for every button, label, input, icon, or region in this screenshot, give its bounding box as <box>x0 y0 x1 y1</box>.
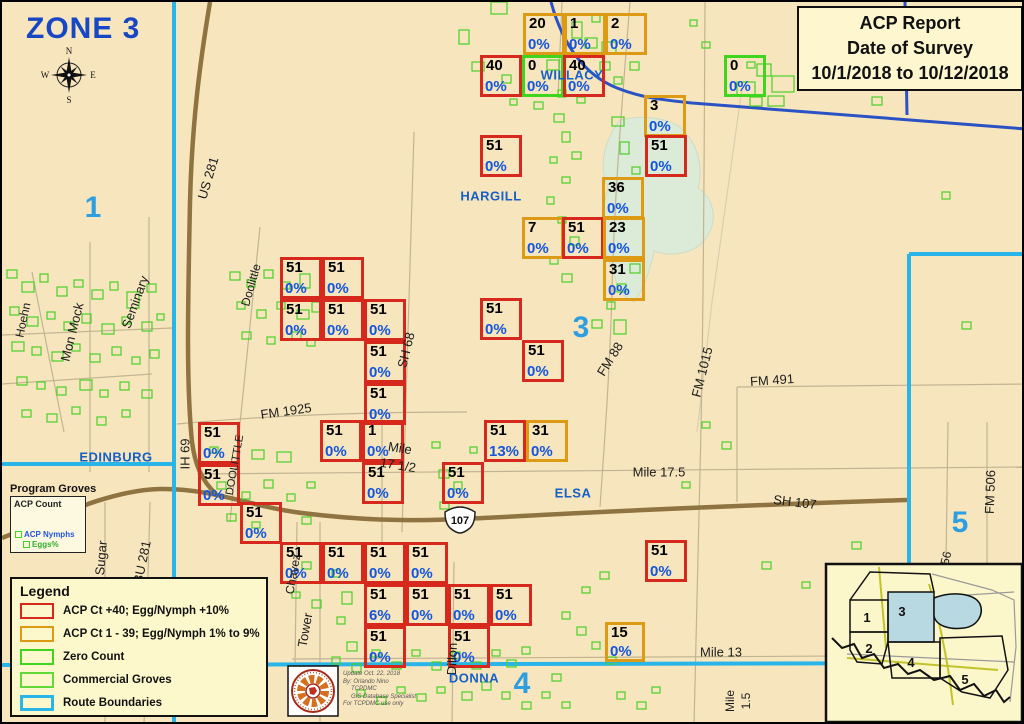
survey-square: 230% <box>603 217 645 259</box>
grove-polygon <box>562 612 570 619</box>
survey-square: 200% <box>523 13 565 55</box>
us-107-shield: 107 <box>445 507 475 533</box>
place-label: ELSA <box>555 486 592 501</box>
inset-zone-number: 2 <box>865 641 872 656</box>
acp-count: 1 <box>570 15 578 32</box>
grove-polygon <box>762 562 771 569</box>
grove-polygon <box>132 357 140 364</box>
legend-label: ACP Ct +40; Egg/Nymph +10% <box>63 605 229 617</box>
grove-polygon <box>287 494 295 501</box>
acp-count: 20 <box>529 15 546 32</box>
acp-count: 51 <box>496 586 513 603</box>
egg-nymph-percent: 0% <box>245 525 267 542</box>
survey-square: 00% <box>724 55 766 97</box>
compass-rose: N S E W <box>41 46 97 105</box>
grove-polygon <box>872 97 882 105</box>
road-label: FM 491 <box>749 371 794 389</box>
grove-polygon <box>562 274 572 282</box>
survey-square: 70% <box>522 217 564 259</box>
grove-polygon <box>522 702 531 709</box>
grove-polygon <box>542 692 550 698</box>
acp-count: 51 <box>370 628 387 645</box>
place-label: EDINBURG <box>79 450 152 465</box>
egg-nymph-percent: 0% <box>610 643 632 660</box>
grove-polygon <box>112 347 121 355</box>
grove-polygon <box>962 322 971 329</box>
grove-polygon <box>630 62 639 70</box>
report-title: ACP Report <box>799 11 1021 36</box>
egg-nymph-percent: 0% <box>285 280 307 297</box>
grove-polygon <box>72 407 80 414</box>
survey-square: 360% <box>602 177 644 219</box>
legend-item: ACP Ct +40; Egg/Nymph +10% <box>20 600 266 622</box>
zone-number: 3 <box>573 311 590 345</box>
compass-e: E <box>90 70 96 80</box>
grove-polygon <box>22 282 34 292</box>
acp-count: 40 <box>486 57 503 74</box>
compass-w: W <box>41 70 50 80</box>
egg-nymph-percent: 0% <box>369 364 391 381</box>
report-date-range: 10/1/2018 to 10/12/2018 <box>799 61 1021 86</box>
road-label: Mile 13 <box>700 645 742 660</box>
legend-item: Route Boundaries <box>20 692 266 714</box>
egg-nymph-percent: 0% <box>285 322 307 339</box>
grove-polygon <box>264 270 273 278</box>
survey-square: 510% <box>364 542 406 584</box>
egg-nymph-percent: 0% <box>495 607 517 624</box>
egg-nymph-percent: 0% <box>527 240 549 257</box>
grove-polygon <box>90 354 100 362</box>
egg-nymph-percent: 0% <box>729 78 751 95</box>
survey-square: 510% <box>322 542 364 584</box>
legend-label: ACP Ct 1 - 39; Egg/Nymph 1% to 9% <box>63 628 260 640</box>
egg-nymph-percent: 0% <box>608 282 630 299</box>
acp-count: 51 <box>370 385 387 402</box>
egg-nymph-percent: 0% <box>369 649 391 666</box>
grove-polygon <box>577 627 586 635</box>
legend-swatch <box>20 695 54 711</box>
egg-nymph-percent: 0% <box>485 158 507 175</box>
grove-polygon <box>7 270 17 278</box>
inset-zone-number: 4 <box>907 655 915 670</box>
inset-zone-number: 5 <box>961 672 968 687</box>
egg-nymph-percent: 0% <box>531 443 553 460</box>
grove-polygon <box>432 442 440 448</box>
grove-polygon <box>120 382 129 390</box>
survey-square: 510% <box>406 584 448 626</box>
road-label: IH 69 <box>178 438 193 469</box>
survey-square: 510% <box>280 257 322 299</box>
grove-glyph <box>15 531 22 538</box>
acp-count: 51 <box>204 424 221 441</box>
grove-polygon <box>614 77 622 84</box>
acp-count: 51 <box>204 466 221 483</box>
acp-count: 51 <box>486 300 503 317</box>
grove-polygon <box>307 482 315 488</box>
egg-nymph-percent: 0% <box>411 565 433 582</box>
egg-nymph-percent: 0% <box>203 445 225 462</box>
road-label: 1.5 <box>739 693 753 710</box>
road-label: Mile 17.5 <box>633 465 686 480</box>
grove-polygon <box>17 377 27 385</box>
program-groves-box: Program Groves ACP Count ACP Nymphs Eggs… <box>10 483 105 553</box>
acp-count-label: ACP Count <box>14 499 82 509</box>
egg-nymph-percent: 0% <box>367 485 389 502</box>
grove-polygon <box>502 692 510 699</box>
acp-count: 36 <box>608 179 625 196</box>
acp-count: 51 <box>328 544 345 561</box>
zone-number: 4 <box>514 667 531 701</box>
acp-count: 51 <box>568 219 585 236</box>
survey-square: 510% <box>406 542 448 584</box>
survey-square: 510% <box>280 299 322 341</box>
egg-nymph-percent: 0% <box>327 565 349 582</box>
survey-square: 30% <box>644 95 686 137</box>
credit-line: TCPDMC <box>343 686 416 694</box>
acp-count: 51 <box>286 259 303 276</box>
program-groves-key: ACP Count ACP Nymphs Eggs% <box>10 496 86 553</box>
survey-square: 510% <box>448 584 490 626</box>
grove-polygon <box>342 592 352 604</box>
credit-line: GIS Database Specialist <box>343 694 416 702</box>
grove-polygon <box>750 97 762 106</box>
acp-count: 51 <box>651 137 668 154</box>
survey-square: 510% <box>562 217 604 259</box>
survey-square: 20% <box>605 13 647 55</box>
grove-polygon <box>550 157 557 163</box>
egg-nymph-percent: 0% <box>447 485 469 502</box>
survey-square: 510% <box>364 299 406 341</box>
grove-polygon <box>682 482 690 488</box>
inset-zone-number: 3 <box>898 604 905 619</box>
grove-polygon <box>32 347 41 355</box>
grove-polygon <box>12 342 24 351</box>
survey-square: 150% <box>605 622 645 662</box>
grove-polygon <box>492 650 500 656</box>
acp-count: 51 <box>448 464 465 481</box>
grove-polygon <box>772 76 794 92</box>
grove-polygon <box>37 382 45 389</box>
grove-polygon <box>852 542 861 549</box>
acp-count: 31 <box>609 261 626 278</box>
program-groves-title: Program Groves <box>10 483 105 495</box>
egg-nymph-percent: 0% <box>649 118 671 135</box>
acp-survey-map: N S E W 107 <box>0 0 1024 724</box>
grove-polygon <box>227 514 236 521</box>
grove-polygon <box>768 96 784 106</box>
acp-nymphs-label: ACP Nymphs <box>15 530 75 539</box>
tcpdmc-logo <box>288 666 338 716</box>
acp-count: 51 <box>246 504 263 521</box>
grove-polygon <box>470 447 477 453</box>
legend-swatch <box>20 603 54 619</box>
grove-polygon <box>562 132 570 142</box>
grove-polygon <box>491 2 507 14</box>
egg-nymph-percent: 0% <box>453 607 475 624</box>
grove-polygon <box>702 422 710 428</box>
survey-square: 510% <box>240 502 282 544</box>
acp-count: 7 <box>528 219 536 236</box>
egg-nymph-percent: 0% <box>569 36 591 53</box>
map-credits: Update Oct. 22, 2018By: Orlando NinoTCPD… <box>343 671 416 709</box>
legend-item: Zero Count <box>20 646 266 668</box>
place-label: HARGILL <box>460 189 521 204</box>
grove-polygon <box>552 674 561 681</box>
survey-square: 516% <box>364 584 406 626</box>
grove-polygon <box>110 282 118 290</box>
grove-polygon <box>92 290 103 299</box>
egg-nymph-percent: 0% <box>650 563 672 580</box>
grove-polygon <box>690 20 697 26</box>
egg-nymph-percent: 13% <box>489 443 519 460</box>
grove-polygon <box>600 572 609 579</box>
grove-polygon <box>942 192 950 199</box>
egg-nymph-percent: 0% <box>485 321 507 338</box>
grove-polygon <box>100 390 108 397</box>
inset-zone-number: 1 <box>863 610 870 625</box>
acp-count: 51 <box>286 301 303 318</box>
grove-polygon <box>577 97 585 103</box>
grove-polygon <box>102 324 114 334</box>
acp-count: 51 <box>412 586 429 603</box>
egg-nymph-percent: 0% <box>411 607 433 624</box>
grove-polygon <box>572 152 581 159</box>
grove-polygon <box>562 702 570 708</box>
acp-count: 51 <box>328 259 345 276</box>
survey-square: 510% <box>320 420 362 462</box>
road-label: Mile <box>723 690 737 712</box>
survey-square: 10% <box>564 13 606 55</box>
grove-polygon <box>242 492 250 499</box>
egg-nymph-percent: 0% <box>369 565 391 582</box>
survey-square: 310% <box>603 259 645 301</box>
grove-polygon <box>459 30 469 44</box>
grove-polygon <box>592 642 600 649</box>
inset-overview-map: 12345 <box>826 564 1022 722</box>
egg-nymph-percent: 0% <box>650 158 672 175</box>
acp-count: 51 <box>370 586 387 603</box>
legend-item: ACP Ct 1 - 39; Egg/Nymph 1% to 9% <box>20 623 266 645</box>
acp-count: 3 <box>650 97 658 114</box>
grove-polygon <box>230 272 240 280</box>
grove-polygon <box>157 314 164 320</box>
grove-polygon <box>257 310 266 318</box>
egg-nymph-percent: 0% <box>369 322 391 339</box>
acp-count: 2 <box>611 15 619 32</box>
grove-polygon <box>252 450 264 459</box>
grove-polygon <box>614 320 626 334</box>
grove-polygon <box>412 650 420 656</box>
egg-nymph-percent: 0% <box>485 78 507 95</box>
legend-rows: ACP Ct +40; Egg/Nymph +10%ACP Ct 1 - 39;… <box>20 600 266 714</box>
grove-polygon <box>337 617 345 624</box>
grove-polygon <box>562 177 570 183</box>
grove-polygon <box>57 387 66 395</box>
grove-polygon <box>652 687 660 693</box>
survey-square: 510% <box>480 135 522 177</box>
grove-polygon <box>57 287 67 296</box>
credit-line: For TCPDMC use only <box>343 701 416 709</box>
grove-polygon <box>637 702 646 709</box>
grove-polygon <box>347 642 357 651</box>
acp-count: 31 <box>532 422 549 439</box>
grove-polygon <box>47 312 55 319</box>
grove-polygon <box>510 99 517 105</box>
survey-square: 510% <box>364 626 406 668</box>
grove-polygon <box>462 692 472 700</box>
acp-count: 51 <box>490 422 507 439</box>
grove-polygon <box>617 692 625 699</box>
grove-polygon <box>97 417 106 425</box>
egg-nymph-percent: 0% <box>203 487 225 504</box>
acp-count: 51 <box>651 542 668 559</box>
grove-glyph <box>23 541 30 548</box>
grove-polygon <box>722 442 731 449</box>
zone-number: 5 <box>952 506 969 540</box>
grove-polygon <box>264 480 273 488</box>
egg-nymph-percent: 0% <box>528 36 550 53</box>
grove-polygon <box>522 647 530 654</box>
place-label: DONNA <box>449 671 499 686</box>
acp-count: 51 <box>528 342 545 359</box>
acp-count: 51 <box>326 422 343 439</box>
place-label: WILLACY <box>541 68 604 83</box>
zone-number: 1 <box>85 191 102 225</box>
grove-polygon <box>74 280 83 287</box>
legend-swatch <box>20 649 54 665</box>
zone-title: ZONE 3 <box>26 12 140 46</box>
survey-square: 5113% <box>484 420 526 462</box>
egg-nymph-percent: 0% <box>327 322 349 339</box>
grove-polygon <box>40 274 48 282</box>
grove-polygon <box>142 390 152 398</box>
legend-label: Zero Count <box>63 651 124 663</box>
us-107-shield-label: 107 <box>451 515 469 527</box>
acp-count: 51 <box>370 343 387 360</box>
road-us281 <box>188 2 216 494</box>
egg-nymph-percent: 0% <box>527 363 549 380</box>
legend-swatch <box>20 672 54 688</box>
survey-square: 510% <box>490 584 532 626</box>
grove-polygon <box>437 687 445 693</box>
legend: Legend ACP Ct +40; Egg/Nymph +10%ACP Ct … <box>10 577 268 717</box>
grove-polygon <box>582 587 590 593</box>
acp-count: 51 <box>454 586 471 603</box>
grove-polygon <box>547 197 554 204</box>
acp-count: 0 <box>528 57 536 74</box>
egg-nymph-percent: 0% <box>608 240 630 257</box>
egg-nymph-percent: 6% <box>369 607 391 624</box>
acp-count: 51 <box>328 301 345 318</box>
egg-nymph-percent: 0% <box>607 200 629 217</box>
egg-nymph-percent: 0% <box>567 240 589 257</box>
grove-polygon <box>47 414 57 422</box>
report-subtitle: Date of Survey <box>799 36 1021 61</box>
grove-polygon <box>22 410 31 417</box>
acp-count: 51 <box>486 137 503 154</box>
survey-square: 510% <box>322 299 364 341</box>
credit-line: Update Oct. 22, 2018 <box>343 671 416 679</box>
grove-polygon <box>802 582 810 588</box>
grove-polygon <box>267 337 275 344</box>
legend-label: Commercial Groves <box>63 674 172 686</box>
grove-polygon <box>150 350 159 358</box>
legend-title: Legend <box>20 583 266 599</box>
legend-item: Commercial Groves <box>20 669 266 691</box>
compass-n: N <box>66 46 73 56</box>
eggs-label: Eggs% <box>23 540 59 549</box>
survey-square: 510% <box>322 257 364 299</box>
legend-label: Route Boundaries <box>63 697 162 709</box>
acp-count: 51 <box>370 544 387 561</box>
grove-polygon <box>122 410 130 417</box>
survey-square: 510% <box>645 540 687 582</box>
acp-count: 1 <box>368 422 376 439</box>
acp-count: 23 <box>609 219 626 236</box>
survey-square: 510% <box>645 135 687 177</box>
survey-square: 510% <box>442 462 484 504</box>
acp-count: 15 <box>611 624 628 641</box>
survey-square: 510% <box>480 298 522 340</box>
credit-line: By: Orlando Nino <box>343 679 416 687</box>
road-label: FM 506 <box>982 470 999 515</box>
grove-polygon <box>417 694 426 701</box>
survey-square: 510% <box>364 383 406 425</box>
report-title-box: ACP Report Date of Survey 10/1/2018 to 1… <box>797 6 1023 91</box>
grove-polygon <box>702 42 710 48</box>
egg-nymph-percent: 0% <box>610 36 632 53</box>
compass-s: S <box>66 95 71 105</box>
survey-square: 310% <box>526 420 568 462</box>
survey-square: 400% <box>480 55 522 97</box>
acp-count: 0 <box>730 57 738 74</box>
grove-polygon <box>554 114 564 122</box>
legend-swatch <box>20 626 54 642</box>
grove-polygon <box>302 517 311 524</box>
grove-polygon <box>592 320 602 328</box>
grove-polygon <box>277 452 291 462</box>
survey-square: 510% <box>522 340 564 382</box>
egg-nymph-percent: 0% <box>325 443 347 460</box>
acp-count: 51 <box>412 544 429 561</box>
grove-polygon <box>534 102 543 109</box>
egg-nymph-percent: 0% <box>327 280 349 297</box>
acp-count: 51 <box>370 301 387 318</box>
